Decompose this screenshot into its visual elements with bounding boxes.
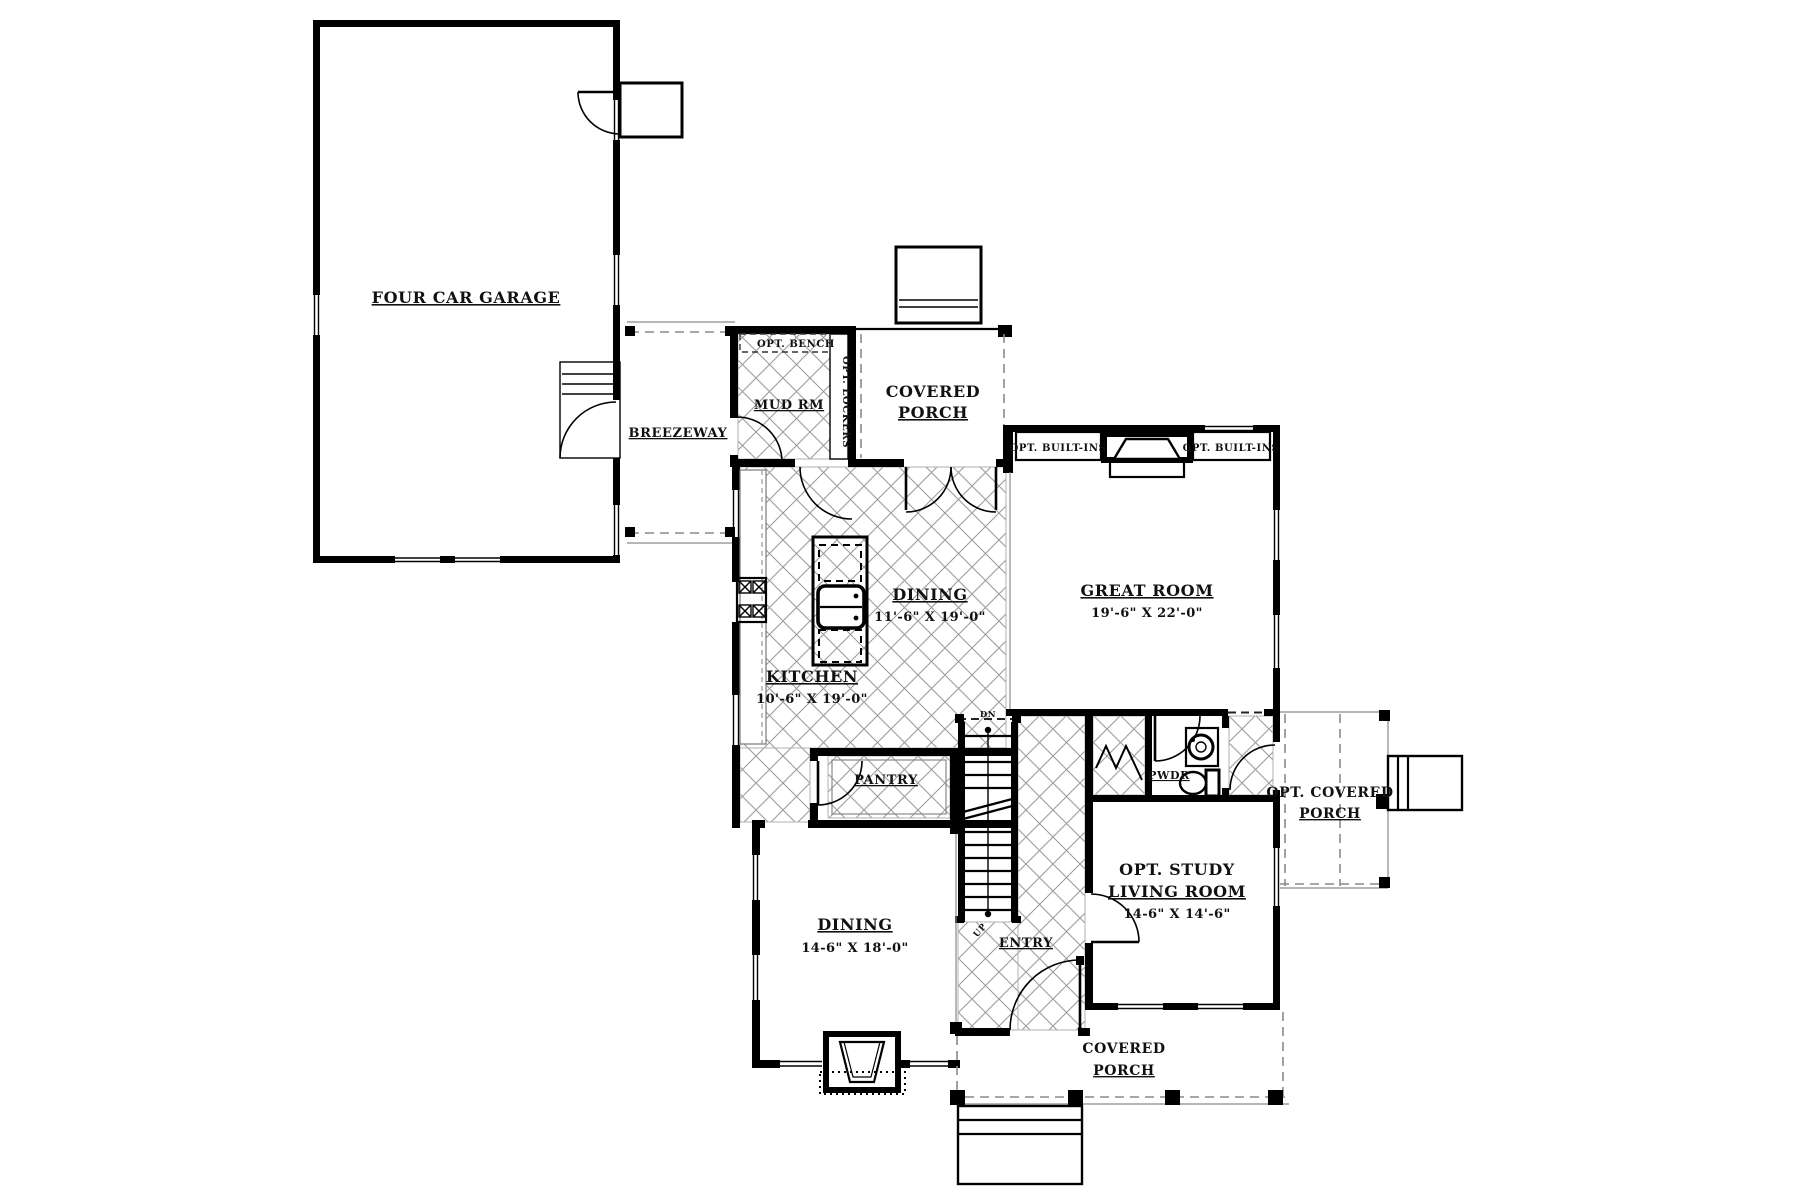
opt-covered-porch-label-2: PORCH: [1299, 806, 1361, 822]
mud-room-label: MUD RM: [754, 398, 824, 413]
covered-porch-bottom-label-2: PORCH: [1093, 1063, 1155, 1079]
kitchen-label: KITCHEN: [766, 667, 858, 686]
study-label-2: LIVING ROOM: [1108, 882, 1246, 901]
opt-covered-porch-label-1: OPT. COVERED: [1266, 785, 1393, 801]
opt-lockers-label: OPT. LOCKERS: [840, 356, 851, 448]
dining-fireplace: [820, 1034, 905, 1094]
covered-porch-bottom-label-1: COVERED: [1082, 1041, 1165, 1057]
dining-nook-dims: 11'-6" X 19'-0": [874, 610, 986, 625]
front-porch-steps: [958, 1106, 1082, 1184]
covered-porch-top-label-1: COVERED: [886, 382, 981, 401]
great-room-label: GREAT ROOM: [1080, 581, 1213, 600]
staircase: [955, 714, 1021, 923]
side-porch-steps: [1388, 756, 1462, 810]
floor-plan-sheet: FOUR CAR GARAGE BREEZEWAY OPT. BENCH MUD…: [0, 0, 1800, 1200]
dining-formal-dims: 14-6" X 18'-0": [801, 941, 908, 956]
covered-porch-top-label-2: PORCH: [898, 403, 968, 422]
study-label-1: OPT. STUDY: [1119, 860, 1235, 879]
powder-label: PWDR: [1148, 769, 1190, 782]
floor-plan-drawing: FOUR CAR GARAGE BREEZEWAY OPT. BENCH MUD…: [0, 0, 1800, 1200]
garage-label: FOUR CAR GARAGE: [372, 288, 561, 307]
dining-formal-label: DINING: [817, 915, 892, 934]
entry-label: ENTRY: [999, 936, 1053, 951]
firebox: [1114, 439, 1180, 459]
built-ins-left-label: OPT. BUILT-INS: [1010, 443, 1107, 454]
breezeway-label: BREEZEWAY: [629, 426, 728, 441]
study-dims: 14-6" X 14'-6": [1123, 907, 1230, 922]
kitchen-dims: 10'-6" X 19'-0": [756, 692, 868, 707]
opt-bench-label: OPT. BENCH: [757, 339, 835, 350]
built-ins-right-label: OPT. BUILT-INS: [1183, 443, 1280, 454]
pantry-label: PANTRY: [854, 773, 918, 788]
stairs-down-label: DN: [980, 710, 996, 720]
dining-nook-label: DINING: [892, 585, 967, 604]
great-room-dims: 19'-6" X 22'-0": [1091, 606, 1203, 621]
